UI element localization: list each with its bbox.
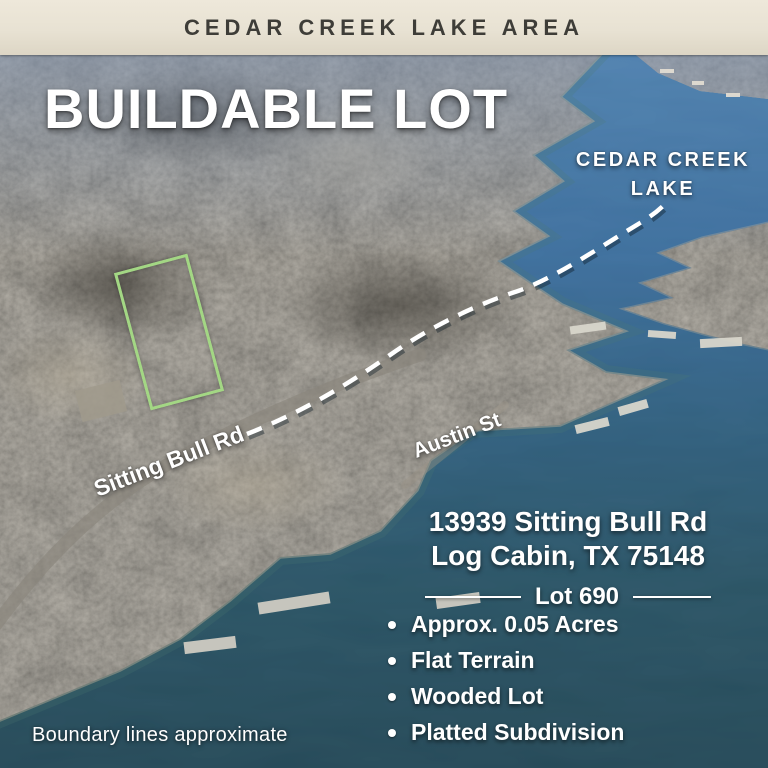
boundary-disclaimer: Boundary lines approximate [32, 724, 288, 747]
feature-list: Approx. 0.05 Acres Flat Terrain Wooded L… [388, 611, 624, 755]
feature-item: Platted Subdivision [388, 719, 624, 746]
lake-name-line1: CEDAR CREEK [558, 146, 768, 175]
address-line2: Log Cabin, TX 75148 [375, 539, 761, 573]
page-title: BUILDABLE LOT [44, 76, 508, 141]
real-estate-flyer: CEDAR CREEK LAKE AREA BUILDABLE LOT CEDA… [0, 0, 768, 768]
lot-rule-left [425, 596, 521, 598]
feature-item: Wooded Lot [388, 683, 624, 710]
address-line1: 13939 Sitting Bull Rd [375, 505, 761, 539]
bullet-dot-icon [388, 657, 396, 665]
top-banner: CEDAR CREEK LAKE AREA [0, 0, 768, 55]
lot-number-row: Lot 690 [375, 583, 761, 611]
lake-name-line2: LAKE [558, 175, 768, 204]
banner-title: CEDAR CREEK LAKE AREA [184, 15, 584, 41]
lot-rule-right [633, 596, 711, 598]
bullet-dot-icon [388, 693, 396, 701]
feature-text: Wooded Lot [411, 683, 543, 710]
bullet-dot-icon [388, 729, 396, 737]
listing-panel: 13939 Sitting Bull Rd Log Cabin, TX 7514… [375, 505, 761, 611]
bullet-dot-icon [388, 621, 396, 629]
feature-text: Platted Subdivision [411, 719, 624, 746]
feature-text: Flat Terrain [411, 647, 535, 674]
feature-item: Flat Terrain [388, 647, 624, 674]
lake-name-label: CEDAR CREEK LAKE [558, 146, 768, 204]
feature-text: Approx. 0.05 Acres [411, 611, 619, 638]
feature-item: Approx. 0.05 Acres [388, 611, 624, 638]
lot-number: Lot 690 [535, 583, 619, 611]
